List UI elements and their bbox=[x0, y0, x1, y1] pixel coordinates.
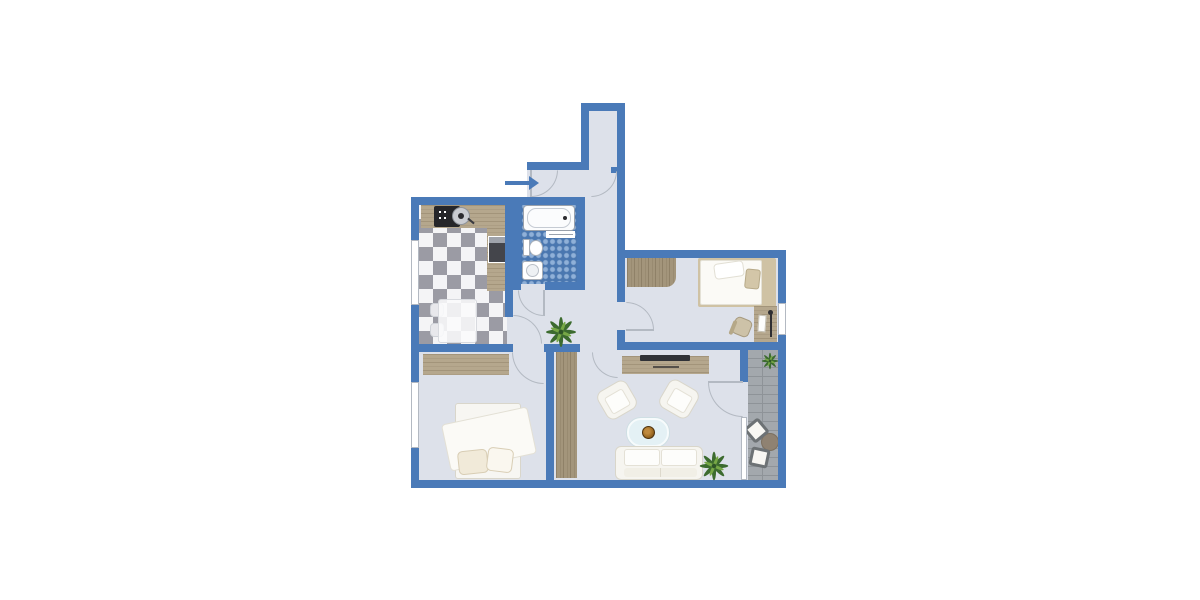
washbasin-bowl bbox=[526, 264, 539, 277]
wall-bottom bbox=[411, 480, 786, 488]
bedroom2-pillow bbox=[486, 447, 515, 474]
wall-kitchen-bath-divider bbox=[505, 197, 521, 290]
balcony-chair-cushion bbox=[752, 450, 767, 465]
cooktop-knob bbox=[444, 217, 446, 219]
wall-exterior-left bbox=[411, 197, 419, 240]
exterior-area bbox=[405, 96, 581, 162]
wall-bedroom1-top bbox=[617, 250, 786, 258]
sofa-seat-cushion bbox=[624, 449, 660, 466]
wall-balcony-right bbox=[778, 350, 786, 488]
fridge-top bbox=[489, 237, 505, 243]
cooktop-knob bbox=[439, 217, 441, 219]
balcony-window-wall bbox=[741, 417, 747, 480]
bedroom2-wardrobe bbox=[423, 354, 509, 375]
bedroom1-sideboard bbox=[627, 258, 676, 287]
bedroom2-window bbox=[411, 382, 419, 448]
wall-bath-right bbox=[577, 197, 585, 290]
bedroom1-pillow-patterned bbox=[744, 268, 761, 289]
entrance-arrow-head-icon bbox=[529, 176, 539, 190]
exterior-area bbox=[625, 96, 795, 250]
wall-shaft-left bbox=[581, 103, 589, 170]
wall-hall-stub bbox=[544, 344, 580, 352]
wall-corridor-right bbox=[617, 103, 625, 302]
sofa-seat-cushion bbox=[661, 449, 697, 466]
bedroom2-pillow bbox=[457, 448, 489, 475]
kitchen-sink-drain bbox=[458, 213, 464, 219]
entrance-arrow-icon bbox=[505, 181, 529, 185]
laptop bbox=[757, 315, 766, 333]
sideboard-handle bbox=[653, 366, 679, 368]
desk-lamp bbox=[770, 313, 772, 337]
tv bbox=[640, 355, 690, 361]
hall-tall-wardrobe bbox=[556, 352, 577, 478]
floor-plan-canvas bbox=[0, 0, 1200, 600]
bathroom-door-leaf bbox=[543, 290, 545, 316]
desk-lamp-head bbox=[768, 310, 773, 315]
bedroom1-window bbox=[778, 303, 786, 335]
bathtub-drain bbox=[563, 216, 567, 220]
balcony-door-leaf bbox=[708, 381, 743, 383]
exterior-area bbox=[405, 162, 527, 197]
sofa-back-split bbox=[660, 468, 661, 477]
wall-exterior-right-upper bbox=[778, 250, 786, 303]
cooktop-knob bbox=[439, 211, 441, 213]
wall-livingroom-top bbox=[617, 342, 786, 350]
decorative-bowl bbox=[642, 426, 655, 439]
wall-kitchen-right bbox=[505, 290, 513, 317]
bedroom1-door-leaf bbox=[626, 329, 654, 331]
toilet-bowl bbox=[529, 240, 543, 256]
wall-balcony-divider bbox=[740, 350, 748, 382]
towel-rail-bar bbox=[549, 234, 573, 235]
kitchen-window bbox=[411, 240, 419, 305]
wall-kitchen-bath-top bbox=[413, 197, 585, 205]
wall-exterior-left bbox=[411, 305, 419, 346]
dining-table bbox=[438, 299, 477, 343]
wall-bedroom2-top bbox=[411, 344, 513, 352]
wall-bath-bottom bbox=[545, 282, 585, 290]
wall-bedroom2-right bbox=[546, 352, 554, 480]
wall-entry-top bbox=[527, 162, 589, 170]
cooktop-knob bbox=[444, 211, 446, 213]
